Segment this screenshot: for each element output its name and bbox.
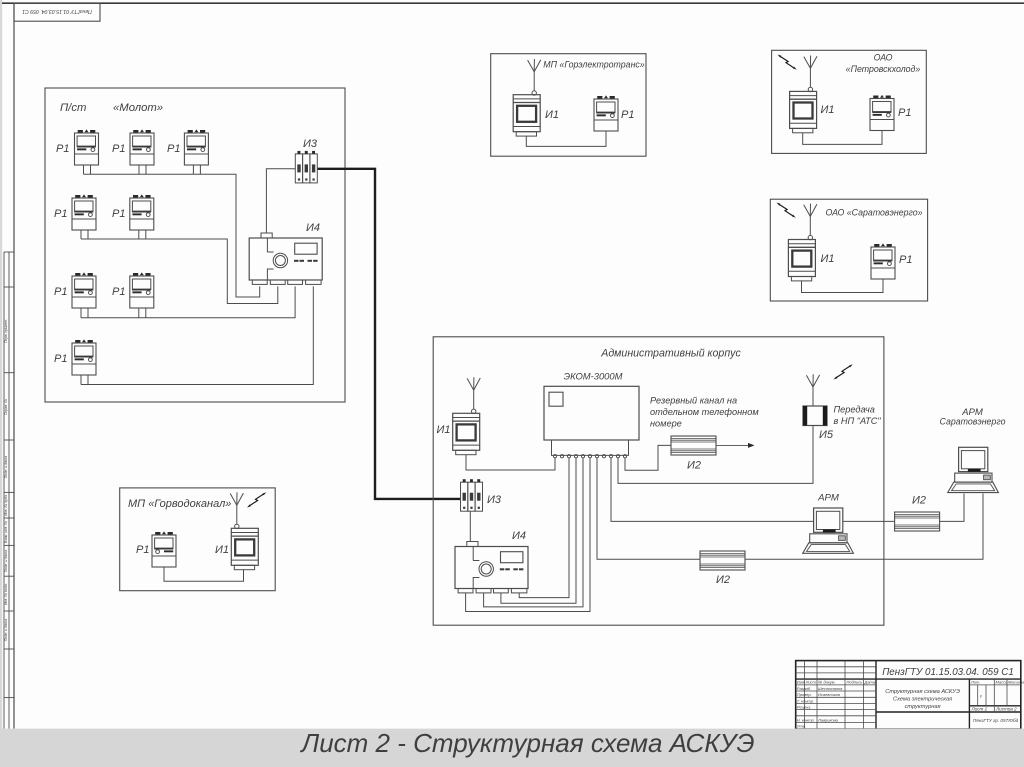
svg-text:Саратовэнерго: Саратовэнерго <box>940 417 1006 427</box>
svg-text:Схема электрическая: Схема электрическая <box>893 697 952 703</box>
svg-text:Р1: Р1 <box>136 544 149 556</box>
svg-text:Т. контр.: Т. контр. <box>797 698 814 703</box>
svg-text:Лист 2: Лист 2 <box>971 707 988 712</box>
svg-text:ПензГТУ 01.15.03.04. 059 С1: ПензГТУ 01.15.03.04. 059 С1 <box>22 8 92 14</box>
svg-text:Подп. и дата: Подп. и дата <box>4 456 8 479</box>
svg-text:Подпись: Подпись <box>847 680 863 685</box>
svg-text:Н. контр.: Н. контр. <box>797 717 815 722</box>
svg-text:Масса: Масса <box>996 680 1009 685</box>
svg-text:И1: И1 <box>437 424 451 436</box>
svg-text:И1: И1 <box>821 253 835 265</box>
svg-text:Провер.: Провер. <box>797 692 812 697</box>
svg-text:Реценз.: Реценз. <box>797 705 812 710</box>
svg-text:Р1: Р1 <box>112 208 125 220</box>
svg-text:Шестопалов: Шестопалов <box>818 686 842 691</box>
svg-text:Передача: Передача <box>834 405 875 415</box>
svg-text:Дата: Дата <box>864 680 876 685</box>
svg-text:Утв.: Утв. <box>797 724 806 729</box>
svg-text:Р1: Р1 <box>167 143 180 155</box>
svg-text:Лист: Лист <box>805 680 817 685</box>
svg-text:Взам. инв. №: Взам. инв. № <box>4 521 8 543</box>
svg-text:П/ст: П/ст <box>60 102 86 114</box>
svg-text:И1: И1 <box>215 544 229 556</box>
svg-text:ОАО «Саратовэнерго»: ОАО «Саратовэнерго» <box>825 208 922 218</box>
svg-text:И4: И4 <box>306 222 320 234</box>
svg-text:Р1: Р1 <box>56 143 69 155</box>
svg-text:Масштаб: Масштаб <box>1008 680 1024 685</box>
svg-text:И2: И2 <box>687 460 701 472</box>
svg-text:Лист 2 - Структурная схема АСК: Лист 2 - Структурная схема АСКУЭ <box>299 728 754 758</box>
svg-text:ОАО: ОАО <box>874 53 893 63</box>
svg-text:МП «Горводоканал»: МП «Горводоканал» <box>128 498 231 510</box>
svg-text:отдельном телефонном: отдельном телефонном <box>650 407 759 417</box>
svg-text:Р1: Р1 <box>898 107 911 119</box>
svg-text:И3: И3 <box>487 494 502 506</box>
svg-text:Р1: Р1 <box>899 254 912 266</box>
svg-text:ЭКОМ-3000М: ЭКОМ-3000М <box>564 371 623 382</box>
svg-text:Исаевников: Исаевников <box>818 692 840 697</box>
svg-text:Перв. примен.: Перв. примен. <box>4 319 8 343</box>
svg-text:№ докум.: № докум. <box>818 680 836 685</box>
svg-text:Р1: Р1 <box>54 286 67 298</box>
svg-text:АРМ: АРМ <box>817 493 839 504</box>
svg-text:И2: И2 <box>716 574 730 586</box>
svg-text:Резервный канал на: Резервный канал на <box>650 396 737 406</box>
svg-text:Структурная схема АСКУЭ: Структурная схема АСКУЭ <box>885 689 960 695</box>
svg-text:И5: И5 <box>819 429 834 441</box>
svg-text:Административный корпус: Административный корпус <box>600 348 741 360</box>
svg-text:Р1: Р1 <box>54 208 67 220</box>
svg-text:Лит.: Лит. <box>970 680 980 685</box>
svg-text:И3: И3 <box>303 138 318 150</box>
svg-text:Р1: Р1 <box>54 353 67 365</box>
svg-text:ПензГТУ гр. 05ТЮбд: ПензГТУ гр. 05ТЮбд <box>973 718 1019 723</box>
svg-text:Подп. и дата: Подп. и дата <box>4 619 8 642</box>
svg-text:Р1: Р1 <box>621 109 634 121</box>
svg-text:Р1: Р1 <box>112 143 125 155</box>
svg-text:Инв. № подл.: Инв. № подл. <box>4 583 8 605</box>
svg-text:Лаврикова: Лаврикова <box>817 717 839 722</box>
svg-text:МП «Горэлектротранс»: МП «Горэлектротранс» <box>543 60 645 70</box>
svg-text:ПензГТУ 01.15.03.04. 059 С1: ПензГТУ 01.15.03.04. 059 С1 <box>882 667 1014 678</box>
svg-text:Разраб.: Разраб. <box>797 686 811 691</box>
svg-text:Листов 2: Листов 2 <box>995 707 1017 712</box>
svg-text:И4: И4 <box>512 530 526 542</box>
svg-text:Инв. № дубл.: Инв. № дубл. <box>4 494 8 516</box>
svg-text:И1: И1 <box>821 104 835 116</box>
svg-text:И1: И1 <box>545 109 559 121</box>
svg-text:«Петровскхолод»: «Петровскхолод» <box>846 64 921 74</box>
svg-text:Р1: Р1 <box>112 286 125 298</box>
svg-text:Изм: Изм <box>797 680 805 685</box>
svg-text:«Молот»: «Молот» <box>113 102 163 114</box>
svg-text:Подп. и дата: Подп. и дата <box>4 550 8 573</box>
svg-text:Справ. №: Справ. № <box>4 399 8 415</box>
svg-text:в НП "АТС": в НП "АТС" <box>834 416 882 426</box>
svg-text:номере: номере <box>650 419 682 429</box>
svg-text:И2: И2 <box>912 495 926 507</box>
svg-text:структурная: структурная <box>905 704 941 710</box>
